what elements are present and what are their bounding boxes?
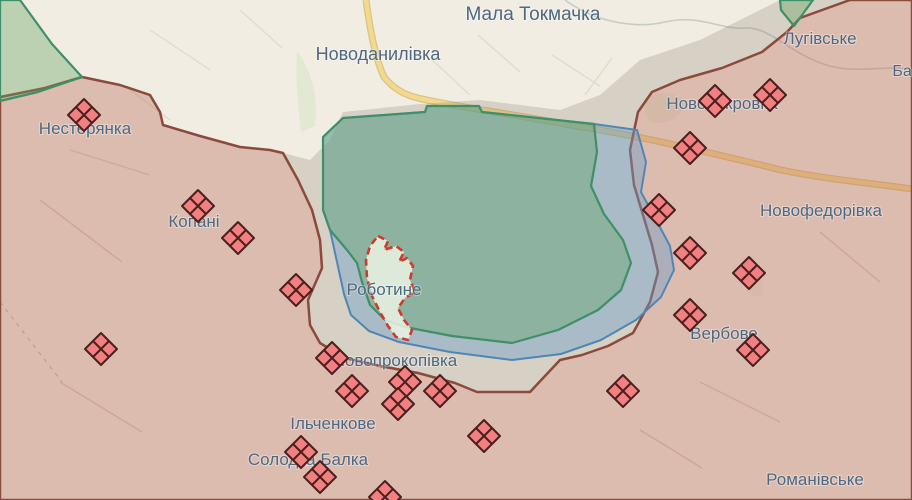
town-label: Новопрокопівка [333, 351, 458, 370]
war-map[interactable]: Мала ТокмачкаНоводанилівкаЛугівськеБагНе… [0, 0, 912, 500]
town-label: Новоданилівка [316, 44, 442, 64]
town-label: Новофедорівка [760, 201, 883, 220]
town-label: Романівське [766, 470, 864, 489]
town-label: Мала Токмачка [466, 4, 601, 25]
town-label: Лугівське [783, 29, 856, 48]
map-canvas[interactable]: Мала ТокмачкаНоводанилівкаЛугівськеБагНе… [0, 0, 912, 500]
town-label: Роботине [347, 280, 422, 299]
town-label: Ільченкове [290, 414, 375, 433]
town-label: Баг [892, 63, 912, 80]
